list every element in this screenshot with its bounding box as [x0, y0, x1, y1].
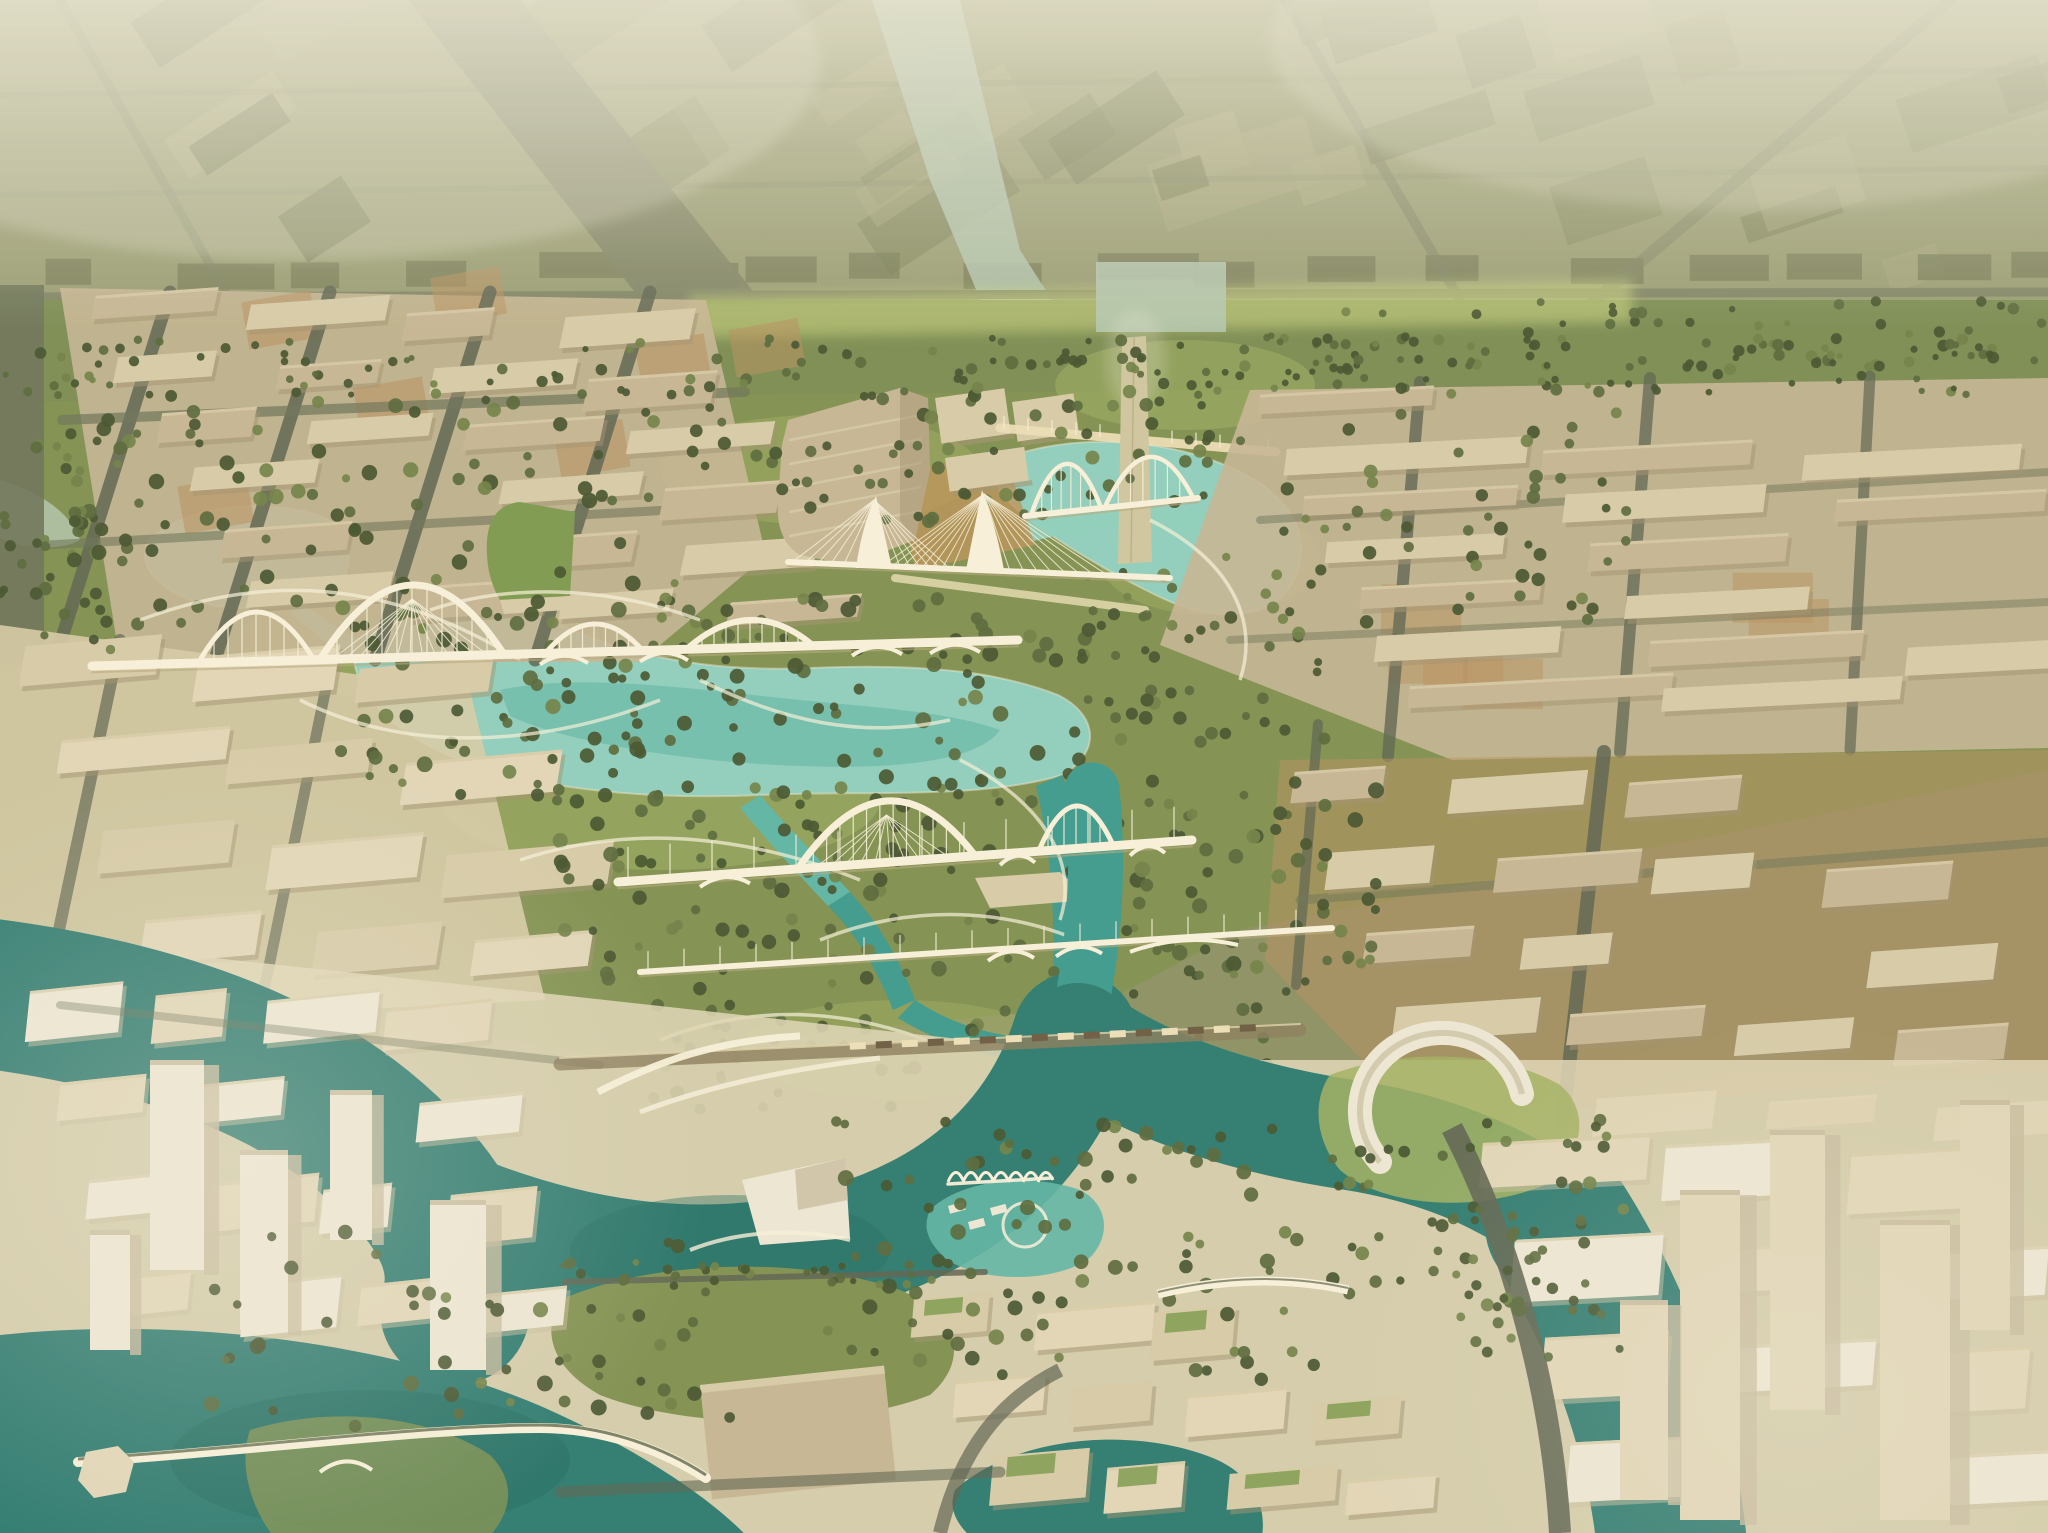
rendering-canvas [0, 0, 2048, 1533]
masterplan-rendering [0, 0, 2048, 1533]
fog-haze [0, 0, 2048, 1533]
